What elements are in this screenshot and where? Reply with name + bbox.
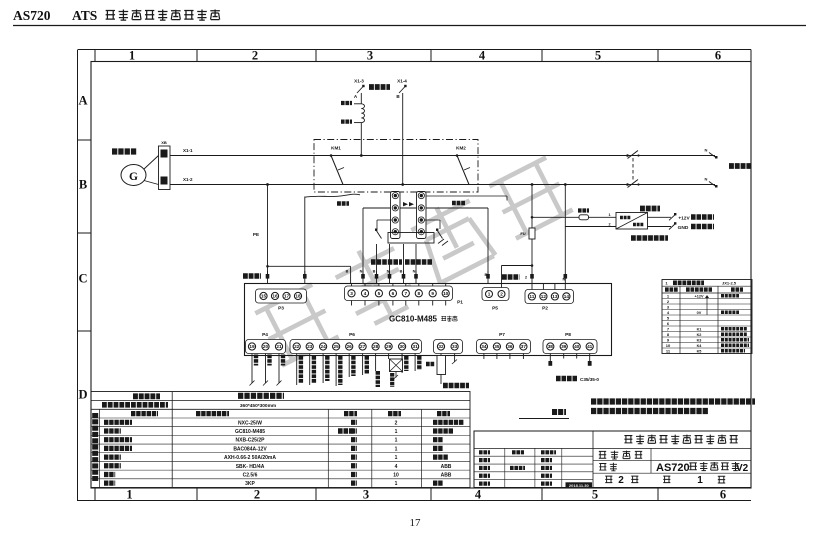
svg-text:ABB: ABB: [441, 464, 452, 470]
svg-text:3KP: 3KP: [245, 481, 255, 487]
svg-text:ABB: ABB: [441, 472, 452, 478]
svg-text:P4: P4: [262, 332, 268, 338]
svg-text:X1-3: X1-3: [354, 79, 364, 84]
svg-text:A: A: [78, 94, 87, 108]
svg-text:17: 17: [284, 294, 290, 299]
svg-text:17: 17: [410, 517, 422, 529]
svg-text:15: 15: [261, 294, 267, 299]
svg-text:1: 1: [395, 481, 398, 487]
svg-text:36: 36: [507, 344, 513, 349]
svg-text:1: 1: [126, 488, 132, 502]
svg-text:6: 6: [720, 488, 726, 502]
svg-text:X1-4: X1-4: [397, 79, 407, 84]
svg-text:2: 2: [254, 488, 260, 502]
svg-text:KM1: KM1: [331, 146, 341, 151]
svg-text:19: 19: [249, 344, 255, 349]
svg-text:4: 4: [475, 488, 482, 502]
svg-text:10: 10: [666, 343, 671, 348]
svg-text:39: 39: [561, 344, 567, 349]
svg-text:+12V: +12V: [678, 216, 690, 222]
svg-text:6: 6: [715, 49, 721, 63]
svg-text:10: 10: [393, 472, 399, 478]
svg-text:K3: K3: [697, 338, 702, 342]
svg-text:1: 1: [697, 475, 703, 486]
svg-text:10: 10: [443, 291, 449, 296]
svg-text:5: 5: [595, 49, 601, 63]
svg-text:30: 30: [399, 344, 405, 349]
svg-text:P1: P1: [457, 300, 463, 306]
svg-text:P3: P3: [278, 306, 284, 312]
svg-text:37: 37: [521, 344, 527, 349]
svg-text:27: 27: [360, 344, 366, 349]
svg-text:C: C: [78, 272, 87, 286]
svg-text:35: 35: [494, 344, 500, 349]
svg-text:11: 11: [529, 294, 534, 299]
svg-text:2: 2: [608, 223, 610, 227]
svg-text:X1-2: X1-2: [183, 177, 193, 182]
svg-text:29: 29: [386, 344, 392, 349]
svg-text:1: 1: [129, 49, 135, 63]
svg-text:P8: P8: [565, 332, 571, 338]
svg-text:K5: K5: [697, 349, 702, 353]
svg-text:C2.5/6: C2.5/6: [243, 472, 258, 478]
svg-text:GC810-M485: GC810-M485: [389, 315, 438, 324]
svg-text:31: 31: [412, 344, 418, 349]
svg-text:5: 5: [378, 291, 381, 296]
svg-text:D: D: [78, 388, 87, 402]
svg-text:2: 2: [395, 420, 398, 426]
svg-text:7: 7: [404, 291, 407, 296]
svg-text:1: 1: [395, 429, 398, 435]
svg-text:ATS: ATS: [72, 8, 97, 23]
svg-text:+12V: +12V: [695, 294, 704, 298]
svg-text:360*450*300mm: 360*450*300mm: [240, 403, 276, 409]
svg-text:6: 6: [392, 291, 395, 296]
svg-text:22: 22: [294, 344, 300, 349]
svg-text:8: 8: [417, 291, 420, 296]
svg-text:AXH-0.66-2 50A/20mA: AXH-0.66-2 50A/20mA: [224, 455, 276, 461]
svg-text:BAC084A-12V: BAC084A-12V: [233, 446, 267, 452]
svg-text:B: B: [373, 270, 376, 274]
svg-text:K1: K1: [697, 327, 702, 331]
svg-text:21: 21: [276, 344, 282, 349]
svg-text:N: N: [705, 148, 708, 153]
svg-text:AS720: AS720: [656, 462, 690, 474]
svg-text:1: 1: [488, 292, 491, 297]
svg-text:40: 40: [574, 344, 580, 349]
svg-text:2: 2: [252, 49, 258, 63]
svg-text:B: B: [400, 270, 403, 274]
svg-text:N: N: [413, 270, 416, 274]
svg-text:32: 32: [438, 344, 444, 349]
svg-text:P2: P2: [542, 306, 548, 312]
svg-text:B: B: [79, 178, 87, 192]
svg-text:NXC-25/W: NXC-25/W: [238, 420, 262, 426]
svg-text:FU: FU: [520, 231, 525, 236]
svg-text:XB: XB: [161, 140, 167, 145]
svg-text:16: 16: [272, 294, 278, 299]
svg-text:1: 1: [395, 455, 398, 461]
svg-text:4: 4: [479, 49, 486, 63]
svg-text:KM2: KM2: [456, 146, 466, 151]
svg-text:3: 3: [367, 49, 373, 63]
svg-text:K2: K2: [697, 333, 702, 337]
svg-text:5: 5: [592, 488, 598, 502]
svg-text:AS720: AS720: [13, 8, 51, 23]
svg-text:NXB-C25/2P: NXB-C25/2P: [236, 438, 266, 444]
svg-text:P6: P6: [349, 332, 355, 338]
svg-text:24: 24: [320, 344, 326, 349]
svg-text:N: N: [360, 270, 363, 274]
svg-text:9: 9: [431, 291, 434, 296]
svg-text:0V: 0V: [697, 311, 702, 315]
svg-text:C35/35-0: C35/35-0: [580, 377, 599, 382]
svg-text:GND: GND: [678, 225, 689, 231]
svg-text:38: 38: [548, 344, 554, 349]
svg-text:41: 41: [587, 344, 593, 349]
svg-text:1: 1: [395, 438, 398, 444]
svg-text:20: 20: [263, 344, 269, 349]
svg-text:1: 1: [395, 446, 398, 452]
svg-text:33: 33: [452, 344, 458, 349]
svg-text:23: 23: [307, 344, 313, 349]
svg-text:B: B: [485, 272, 488, 277]
svg-text:1: 1: [608, 213, 610, 217]
svg-text:3: 3: [363, 488, 369, 502]
svg-text:28: 28: [373, 344, 379, 349]
svg-text:4: 4: [395, 464, 398, 470]
svg-text:B: B: [346, 270, 349, 274]
svg-text:18: 18: [295, 294, 301, 299]
svg-text:2: 2: [618, 475, 624, 486]
svg-text:2: 2: [500, 292, 503, 297]
svg-text:PE: PE: [253, 232, 259, 237]
svg-text:26: 26: [347, 344, 353, 349]
svg-text:2018.11.30: 2018.11.30: [569, 483, 590, 488]
svg-text:N: N: [387, 270, 390, 274]
svg-text:14: 14: [564, 294, 570, 299]
svg-text:SBK- HD/4A: SBK- HD/4A: [236, 464, 265, 470]
svg-text:12: 12: [541, 294, 547, 299]
svg-text:P5: P5: [492, 306, 498, 312]
svg-text:X1-1: X1-1: [183, 148, 193, 153]
svg-text:G: G: [129, 171, 138, 183]
svg-text:34: 34: [481, 344, 487, 349]
svg-text:25: 25: [333, 344, 339, 349]
svg-text:P7: P7: [499, 332, 505, 338]
svg-text:JX1-2.5: JX1-2.5: [722, 281, 737, 286]
svg-text:4: 4: [364, 291, 367, 296]
svg-text:3: 3: [350, 291, 353, 296]
svg-text:GC810-M485: GC810-M485: [235, 429, 265, 435]
svg-text:13: 13: [552, 294, 558, 299]
svg-text:V2: V2: [736, 463, 749, 474]
svg-text:N: N: [705, 177, 708, 182]
